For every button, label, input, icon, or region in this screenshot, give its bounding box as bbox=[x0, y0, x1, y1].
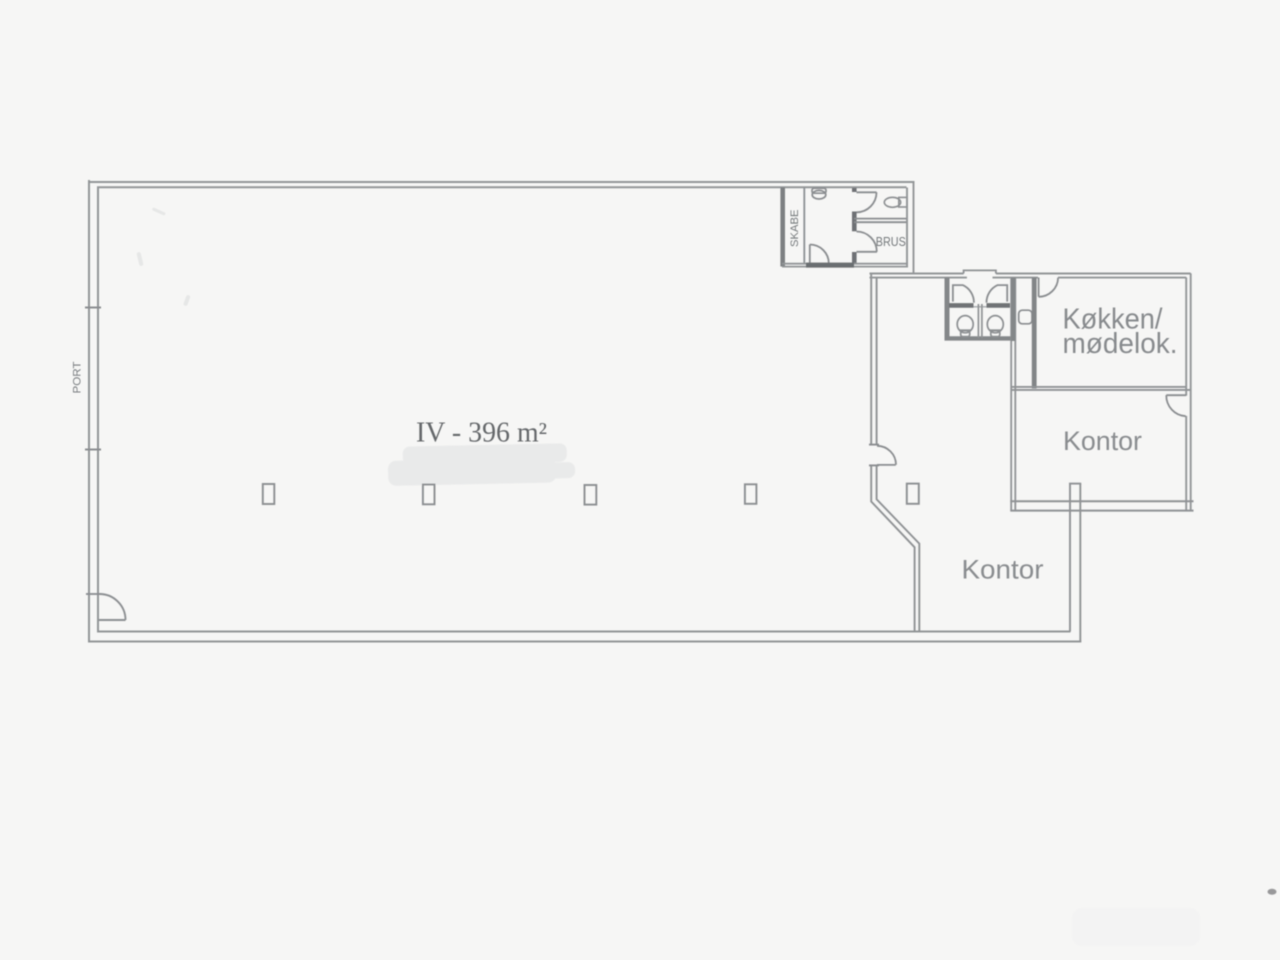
svg-text:Kontor: Kontor bbox=[962, 555, 1044, 585]
svg-text:Kontor: Kontor bbox=[1063, 426, 1142, 456]
svg-text:IV - 396 m²: IV - 396 m² bbox=[416, 418, 547, 449]
svg-text:mødelok.: mødelok. bbox=[1063, 328, 1178, 360]
svg-text:PORT: PORT bbox=[72, 361, 84, 393]
svg-text:BRUS: BRUS bbox=[876, 235, 906, 249]
svg-text:SKABE: SKABE bbox=[789, 210, 801, 248]
